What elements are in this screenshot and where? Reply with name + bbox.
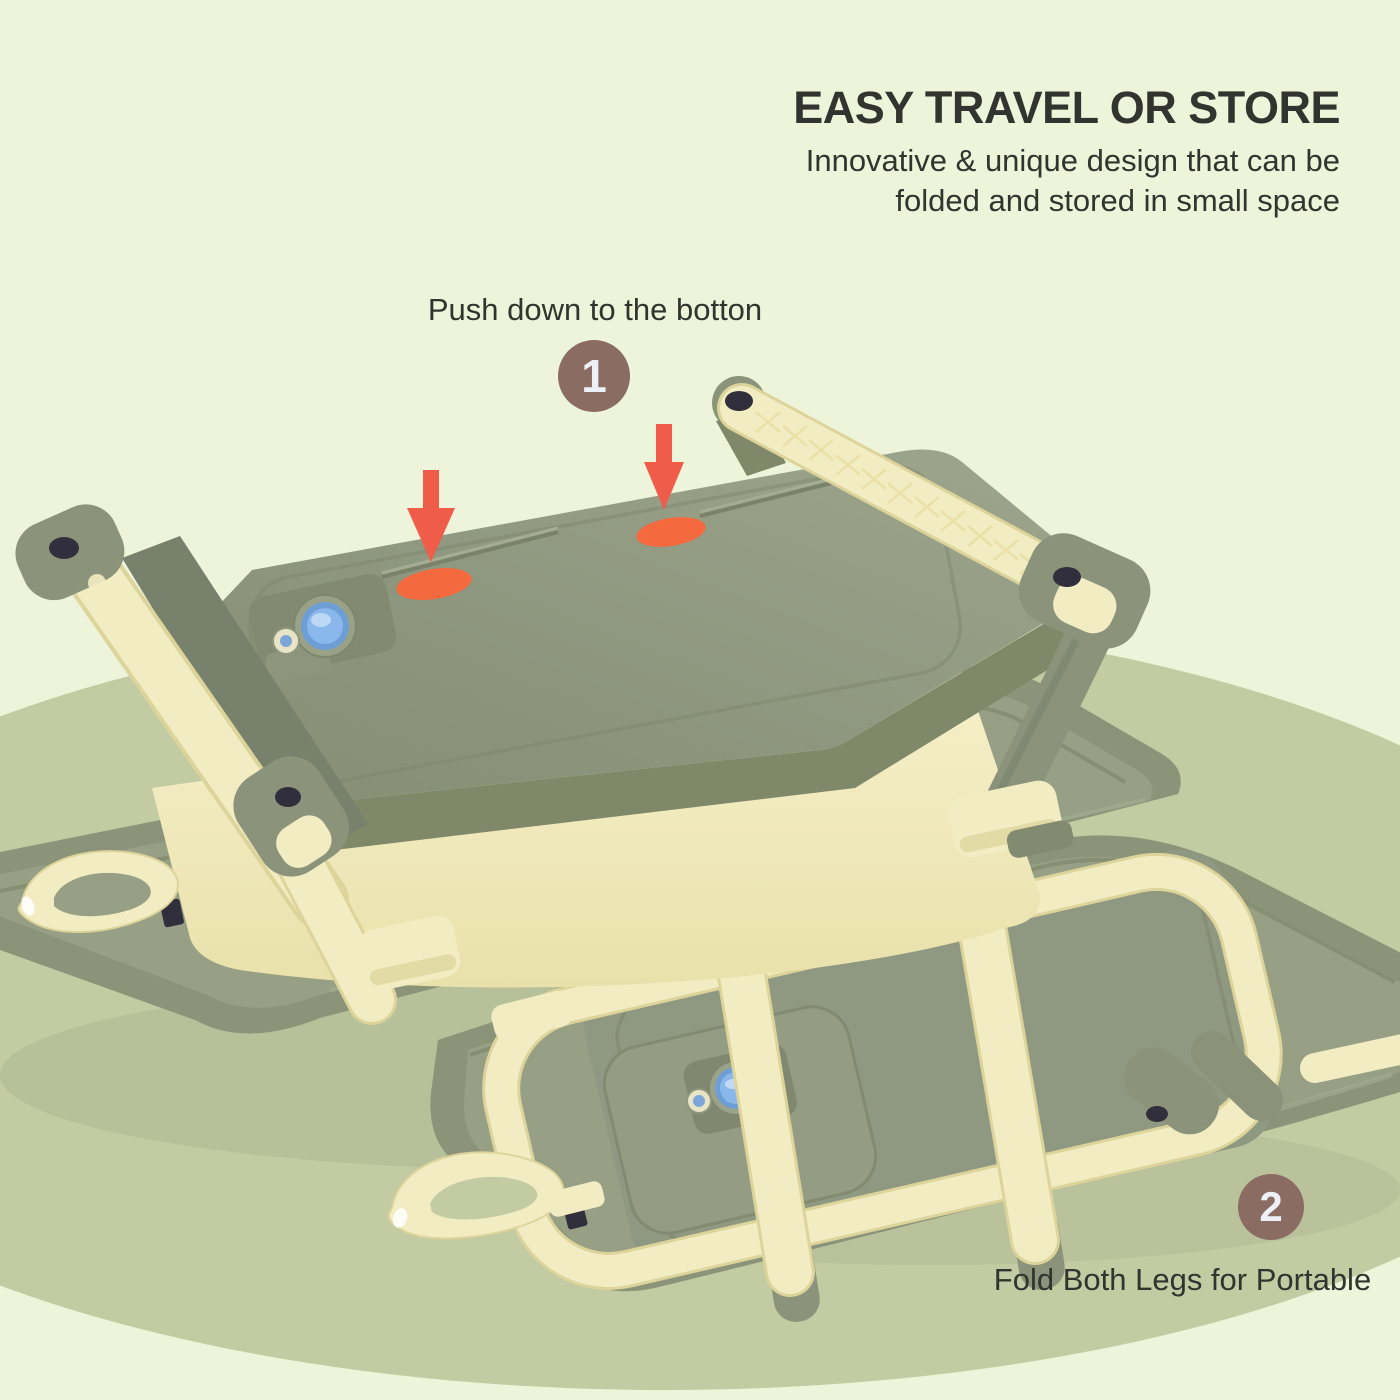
step-1-label: Push down to the botton xyxy=(395,292,795,328)
hinge-rivet xyxy=(1146,1106,1168,1122)
step-2-badge: 2 xyxy=(1238,1174,1304,1240)
header: EASY TRAVEL OR STORE Innovative & unique… xyxy=(793,84,1340,221)
hinge-rivet xyxy=(1053,567,1081,587)
step-1-badge: 1 xyxy=(558,340,630,412)
subtitle-line-1: Innovative & unique design that can be xyxy=(793,141,1340,181)
hinge-rivet xyxy=(49,537,79,559)
page: EASY TRAVEL OR STORE Innovative & unique… xyxy=(0,0,1400,1400)
hinge-rivet xyxy=(275,787,301,807)
hinge-rivet xyxy=(725,391,753,411)
page-title: EASY TRAVEL OR STORE xyxy=(793,84,1340,131)
subtitle-line-2: folded and stored in small space xyxy=(793,181,1340,221)
step-2-label: Fold Both Legs for Portable xyxy=(985,1262,1380,1298)
